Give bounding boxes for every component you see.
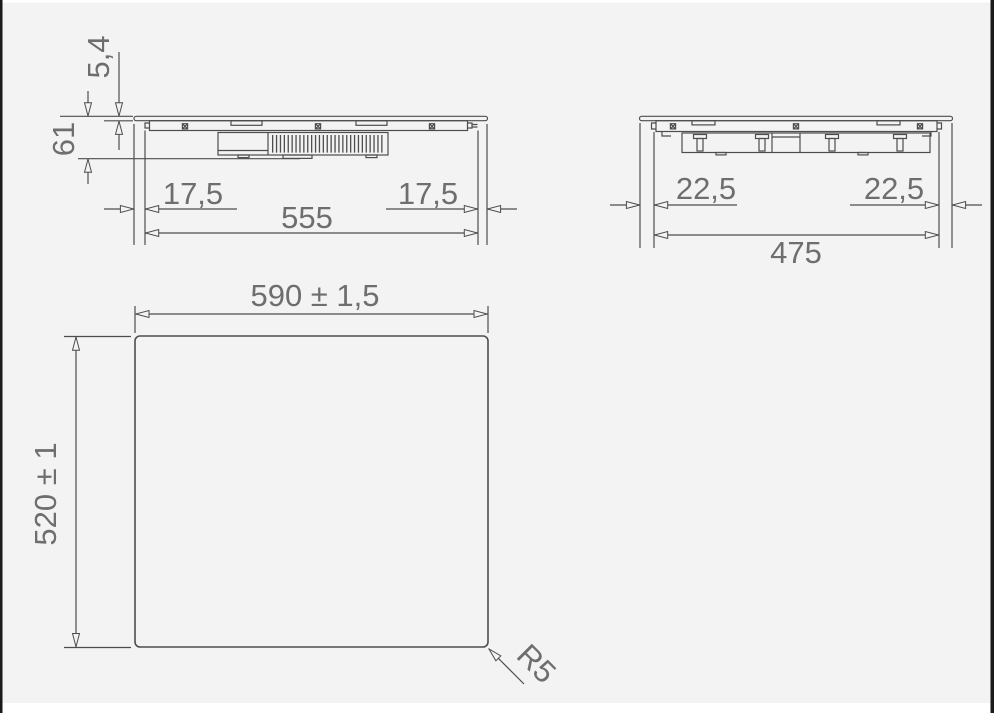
technical-drawing-canvas: 5,4 61 17,5 555 1 — [0, 0, 994, 713]
dim-label-side-overhang-right: 22,5 — [864, 171, 924, 206]
frame-bar-left — [0, 0, 3, 713]
frame-bar-right — [991, 0, 994, 713]
dim-label-overall-height: 61 — [46, 122, 81, 156]
frame-strip-top — [3, 0, 992, 3]
dim-label-body-depth: 475 — [770, 235, 822, 270]
frame-strip-bottom — [3, 703, 992, 713]
dim-label-cutout-width: 590 ± 1,5 — [250, 278, 379, 313]
dim-label-cutout-depth: 520 ± 1 — [28, 442, 63, 545]
hob-dimension-drawing: 5,4 61 17,5 555 1 — [0, 0, 994, 713]
dim-label-side-overhang-left: 22,5 — [676, 171, 736, 206]
dim-label-front-overhang-left: 17,5 — [163, 176, 223, 211]
dim-label-front-overhang-right: 17,5 — [398, 176, 458, 211]
dim-label-body-width: 555 — [281, 200, 333, 235]
canvas-background — [0, 0, 994, 713]
dim-label-glass-thickness: 5,4 — [81, 35, 116, 78]
